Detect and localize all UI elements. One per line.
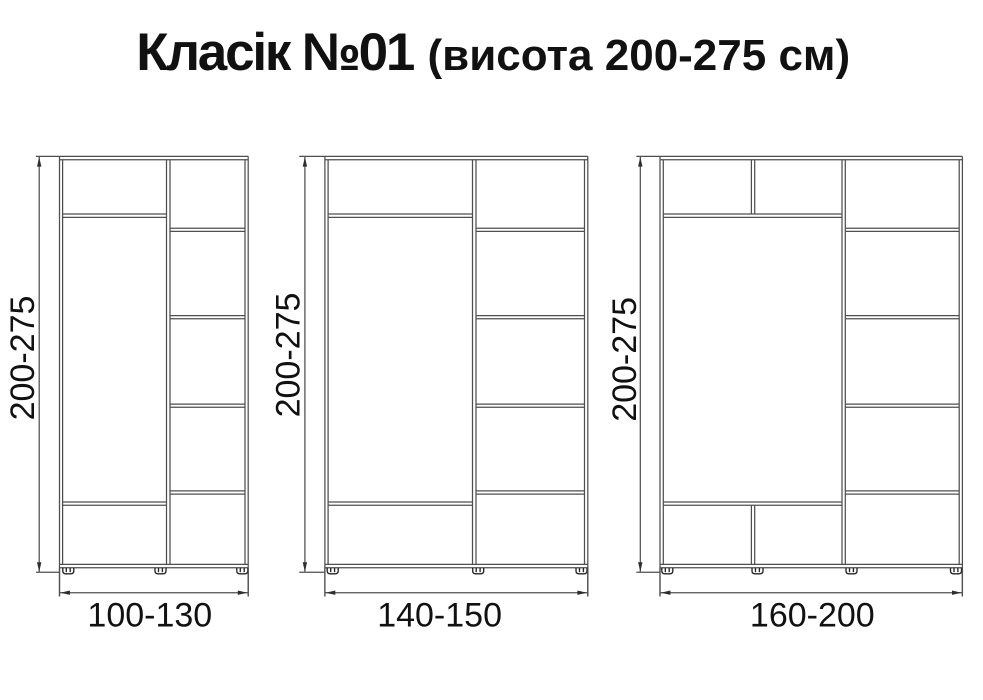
svg-text:200-275: 200-275 [4,296,42,421]
svg-text:100-130: 100-130 [87,597,212,635]
svg-text:(висота 200-275 см): (висота 200-275 см) [428,31,851,80]
svg-text:140-150: 140-150 [377,597,502,635]
svg-text:200-275: 200-275 [270,293,308,418]
svg-text:200-275: 200-275 [606,297,644,422]
svg-text:160-200: 160-200 [750,597,875,635]
svg-text:Класік №01: Класік №01 [136,23,414,82]
